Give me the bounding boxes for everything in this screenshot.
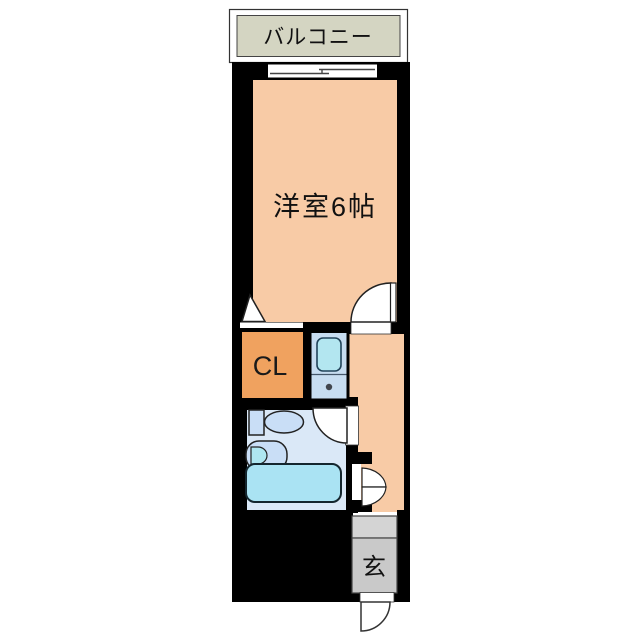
toilet-tank-icon [249,410,264,435]
wall-niche-top [356,452,372,464]
room-door-opening [351,322,391,334]
wall-left-room [232,62,253,334]
kitchen-sink-icon [317,338,341,371]
wall-right-entrance [397,510,410,602]
wall-right-room [397,62,410,334]
wall-block-bottom-left [232,510,353,602]
wall-right-hallway [404,334,410,512]
washbasin-bowl-icon [251,447,267,464]
toilet-bowl-icon [265,411,304,433]
niche-interior [352,464,361,500]
floorplan-canvas: バルコニー 洋室6帖 CL [0,0,640,640]
entrance-step [352,516,397,538]
main-room-label: 洋室6帖 [273,192,377,222]
bathtub-icon [246,464,341,502]
entrance-area: 玄 [352,516,397,593]
front-door-opening [360,593,394,603]
balcony-area: バルコニー [230,10,408,63]
kitchen-area [310,332,348,401]
closet-area: CL [240,330,305,400]
kitchen-burner-icon [326,384,332,390]
floorplan-svg: バルコニー 洋室6帖 CL [0,0,640,640]
balcony-label: バルコニー [263,26,373,49]
closet-label: CL [253,351,288,381]
room-door-leaf [391,283,397,322]
entrance-label: 玄 [362,554,386,581]
balcony-window [268,65,377,78]
